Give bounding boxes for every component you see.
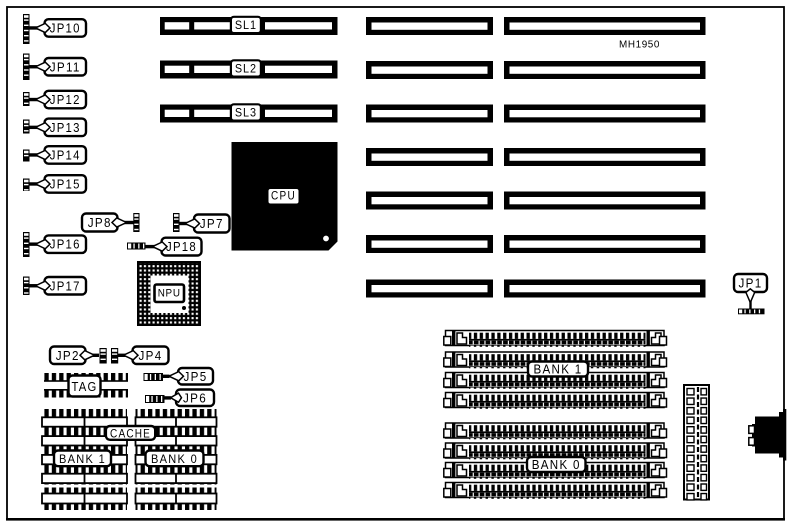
svg-text:TAG: TAG <box>72 379 98 394</box>
svg-text:BANK 0: BANK 0 <box>532 458 581 472</box>
svg-text:CPU: CPU <box>271 191 296 203</box>
svg-text:SL3: SL3 <box>235 105 257 119</box>
svg-text:BANK 1: BANK 1 <box>534 363 583 377</box>
svg-text:BANK 0: BANK 0 <box>151 452 198 466</box>
svg-text:MH1950: MH1950 <box>619 40 660 51</box>
svg-text:SL2: SL2 <box>235 61 257 75</box>
svg-text:JP8: JP8 <box>88 216 112 230</box>
svg-text:CACHE: CACHE <box>110 426 151 440</box>
svg-text:JP15: JP15 <box>50 177 81 191</box>
svg-text:JP16: JP16 <box>50 238 81 252</box>
svg-text:JP14: JP14 <box>50 148 81 162</box>
svg-text:JP5: JP5 <box>184 370 208 384</box>
svg-text:JP11: JP11 <box>50 60 81 74</box>
svg-text:JP13: JP13 <box>50 121 81 135</box>
svg-text:JP10: JP10 <box>50 21 81 35</box>
svg-text:JP18: JP18 <box>166 240 197 254</box>
svg-text:SL1: SL1 <box>235 18 257 32</box>
svg-text:JP12: JP12 <box>50 93 81 107</box>
svg-text:JP6: JP6 <box>183 391 207 405</box>
svg-text:JP7: JP7 <box>200 217 224 231</box>
svg-text:JP2: JP2 <box>56 349 80 363</box>
svg-text:JP17: JP17 <box>50 279 81 293</box>
svg-text:JP4: JP4 <box>139 349 163 363</box>
svg-text:NPU: NPU <box>158 288 181 300</box>
svg-text:BANK 1: BANK 1 <box>59 452 106 466</box>
